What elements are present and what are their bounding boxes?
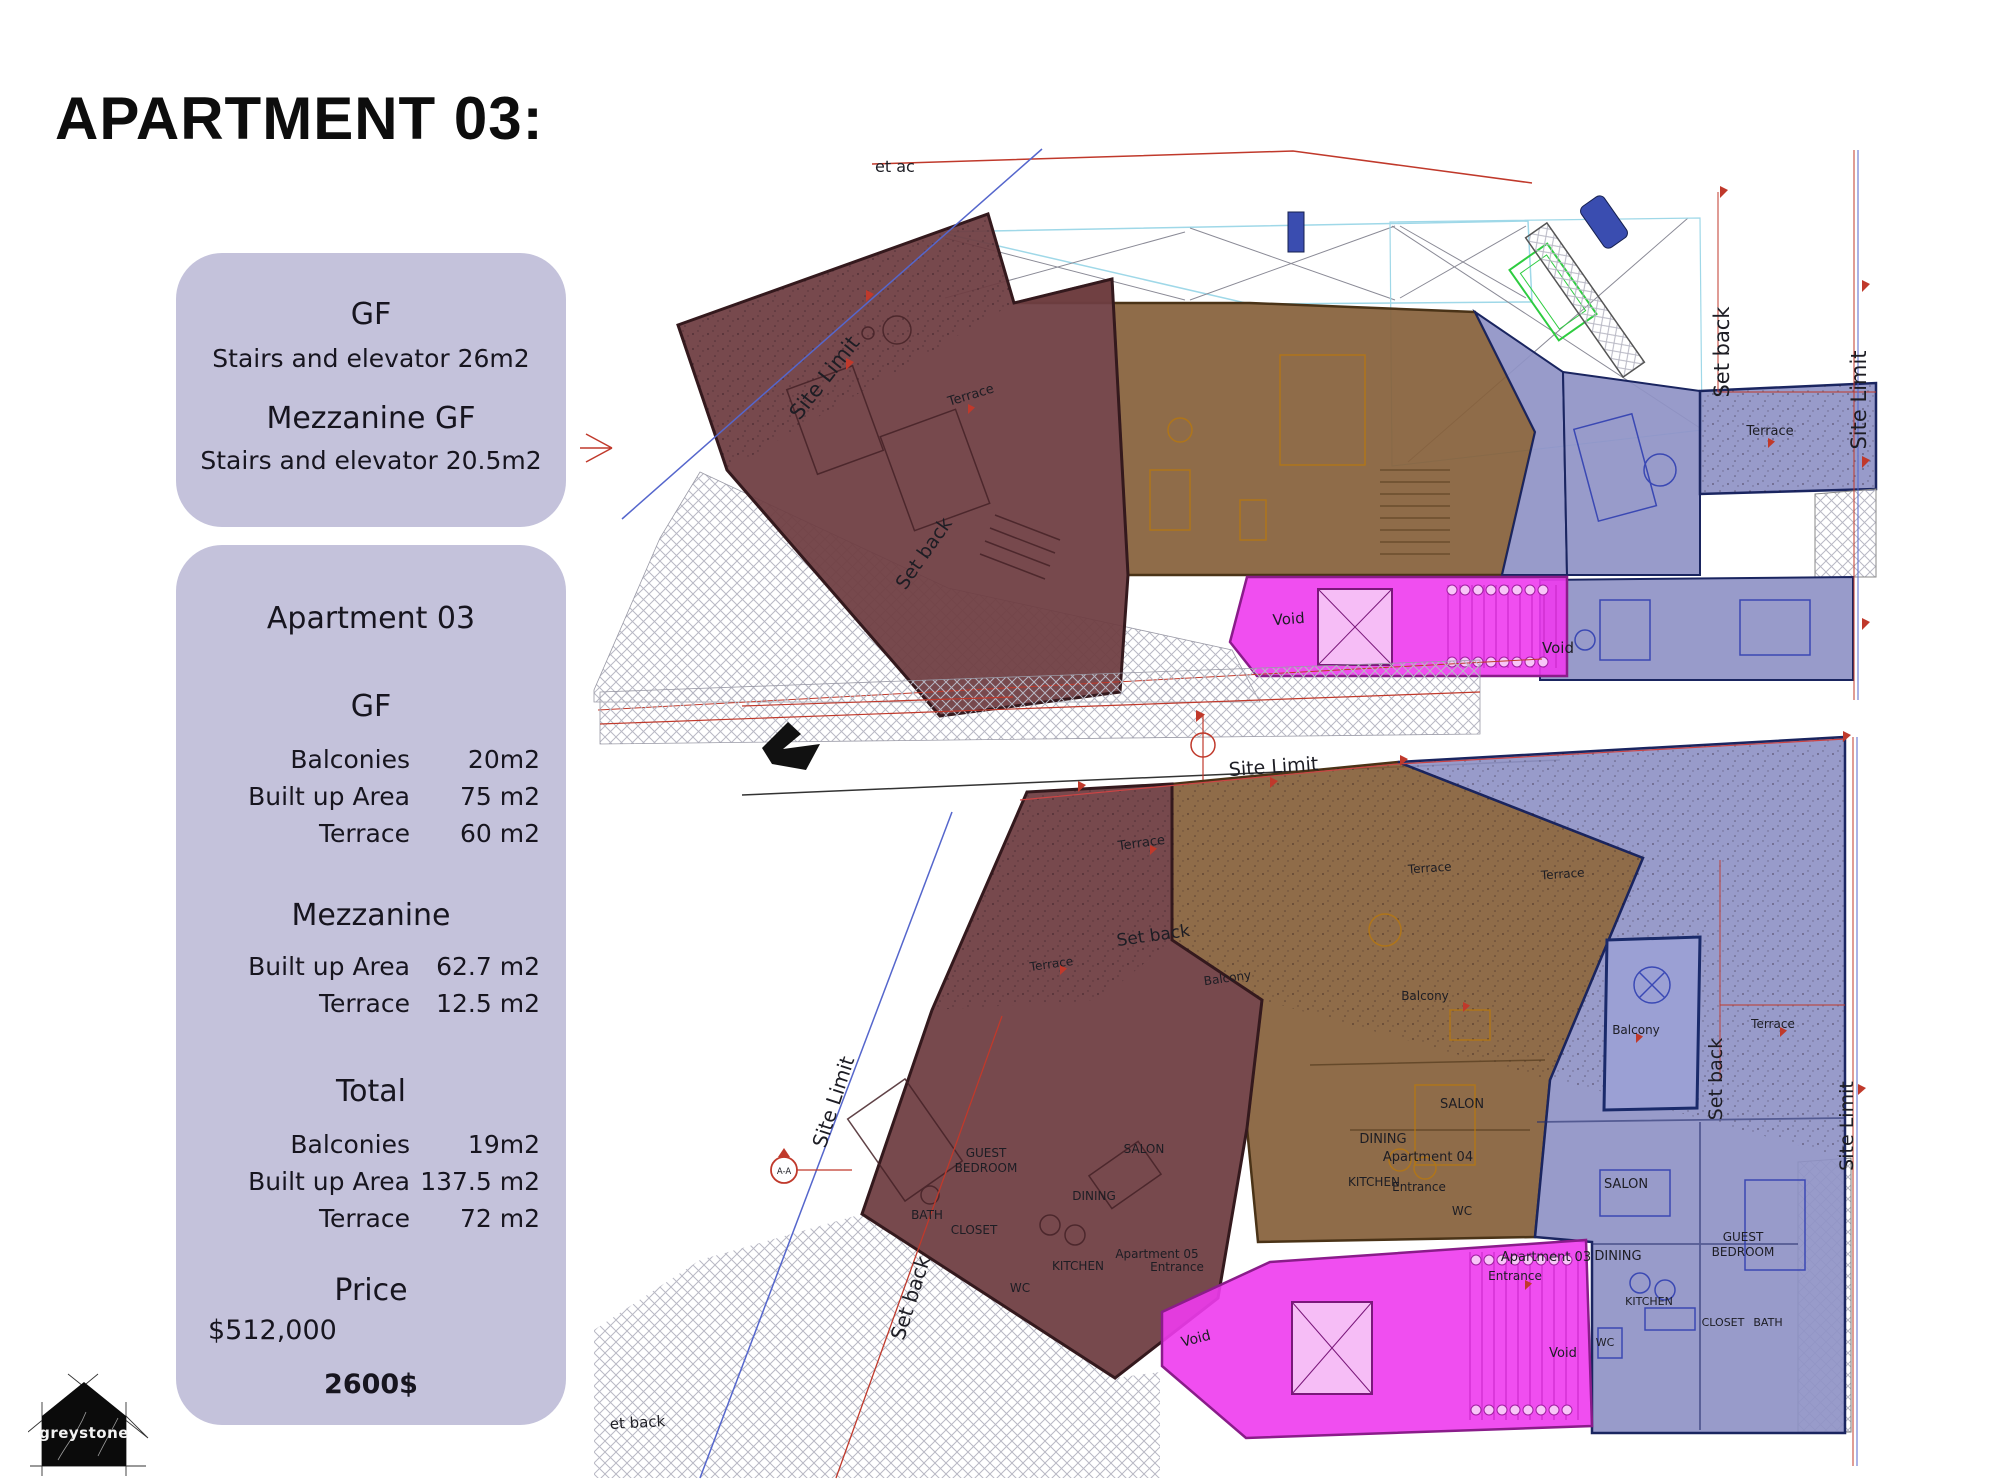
plan-label: Site Limit xyxy=(1836,1081,1858,1171)
logo-text: greystone xyxy=(39,1424,129,1442)
page-title: APARTMENT 03: xyxy=(55,84,544,153)
floor-plans: et ac Site Limit Terrace Set back Set ba… xyxy=(580,140,2000,1480)
roof-column xyxy=(1578,193,1630,250)
apartment-03-rooms xyxy=(1540,577,1853,680)
table-row: Balconies 19m2 xyxy=(176,1126,566,1163)
plan-label: Balcony xyxy=(1612,1023,1660,1037)
section-heading-gf: GF xyxy=(176,689,566,725)
gf-rows: Balconies 20m2 Built up Area 75 m2 Terra… xyxy=(176,741,566,852)
price-value: $512,000 xyxy=(176,1315,566,1347)
plan-label: GUEST xyxy=(966,1146,1007,1160)
plan-label: Void xyxy=(1549,1346,1577,1361)
plan-label: GUEST xyxy=(1723,1230,1764,1244)
company-logo: greystone xyxy=(28,1372,168,1480)
plan-label: et ac xyxy=(875,157,915,176)
mezzanine-rows: Built up Area 62.7 m2 Terrace 12.5 m2 xyxy=(176,948,566,1022)
summary-gf-line: Stairs and elevator 26m2 xyxy=(176,343,566,375)
details-title: Apartment 03 xyxy=(176,601,566,637)
plan-label: DINING xyxy=(1359,1132,1406,1147)
section-heading-total: Total xyxy=(176,1074,566,1110)
plan-label: KITCHEN xyxy=(1052,1259,1104,1273)
plan-label: KITCHEN xyxy=(1625,1295,1673,1308)
plan-label: WC xyxy=(1452,1204,1472,1218)
plan-label: A-A xyxy=(777,1167,792,1177)
plan-label: Apartment 04 xyxy=(1383,1150,1473,1165)
apartment-03-region xyxy=(1563,372,1700,575)
table-row: Terrace 72 m2 xyxy=(176,1200,566,1237)
plan-label: Entrance xyxy=(1392,1180,1446,1194)
plan-label: CLOSET xyxy=(951,1223,998,1237)
plan-label: Set back xyxy=(1710,306,1734,398)
plan-label: BEDROOM xyxy=(1712,1245,1775,1259)
summary-card: GF Stairs and elevator 26m2 Mezzanine GF… xyxy=(176,253,566,527)
plan-label: BATH xyxy=(911,1208,943,1222)
table-row: Built up Area 137.5 m2 xyxy=(176,1163,566,1200)
plan-label: CLOSET xyxy=(1702,1316,1745,1329)
plan-label: Site Limit xyxy=(807,1053,859,1150)
details-card: Apartment 03 GF Balconies 20m2 Built up … xyxy=(176,545,566,1425)
plan-label: Apartment 03 xyxy=(1501,1250,1591,1265)
plan-label: DINING xyxy=(1072,1189,1116,1203)
plan-label: Entrance xyxy=(1488,1269,1542,1283)
total-rows: Balconies 19m2 Built up Area 137.5 m2 Te… xyxy=(176,1126,566,1237)
plan-label: et back xyxy=(609,1412,666,1433)
wall-hatch-strip xyxy=(1815,489,1876,577)
table-row: Built up Area 75 m2 xyxy=(176,778,566,815)
plan-label: BEDROOM xyxy=(955,1161,1018,1175)
presentation-slide: { "title": "APARTMENT 03:", "colors": { … xyxy=(0,0,2000,1480)
summary-mezzanine-line: Stairs and elevator 20.5m2 xyxy=(176,445,566,477)
ramp-hatch xyxy=(1526,223,1645,377)
rate-value: 2600$ xyxy=(176,1369,566,1401)
table-row: Terrace 60 m2 xyxy=(176,815,566,852)
plan-label: Set back xyxy=(1705,1038,1727,1120)
plan-label: Apartment 05 xyxy=(1115,1247,1198,1261)
ground-floor-plan: Site Limit Site Limit Set back Terrace T… xyxy=(594,660,1866,1478)
table-row: Terrace 12.5 m2 xyxy=(176,985,566,1022)
survey-marker xyxy=(580,434,612,462)
table-row: Built up Area 62.7 m2 xyxy=(176,948,566,985)
plan-label: SALON xyxy=(1440,1097,1484,1112)
plan-label: Site Limit xyxy=(1847,350,1871,449)
table-row: Balconies 20m2 xyxy=(176,741,566,778)
plan-label: Terrace xyxy=(1750,1017,1795,1031)
price-heading: Price xyxy=(176,1273,566,1309)
plan-label: Void xyxy=(1272,609,1305,629)
section-heading-mezzanine: Mezzanine xyxy=(176,898,566,934)
summary-gf-title: GF xyxy=(176,297,566,333)
plan-label: Entrance xyxy=(1150,1260,1204,1274)
plan-label: WC xyxy=(1010,1281,1030,1295)
plan-label: BATH xyxy=(1753,1316,1782,1329)
structural-column xyxy=(1288,212,1304,252)
plan-label: SALON xyxy=(1604,1177,1648,1192)
plan-label: WC xyxy=(1596,1336,1615,1349)
plan-label: Terrace xyxy=(1745,424,1793,439)
plan-label: DINING xyxy=(1594,1249,1641,1264)
summary-mezzanine-title: Mezzanine GF xyxy=(176,401,566,437)
section-marker-arrow xyxy=(778,1148,790,1157)
plan-label: Balcony xyxy=(1401,989,1449,1003)
plan-label: SALON xyxy=(1124,1142,1165,1156)
boundary-line xyxy=(872,151,1532,183)
mezzanine-plan: et ac Site Limit Terrace Set back Set ba… xyxy=(580,149,1876,716)
roof-bay xyxy=(938,221,1532,304)
plan-label: Void xyxy=(1542,639,1574,657)
